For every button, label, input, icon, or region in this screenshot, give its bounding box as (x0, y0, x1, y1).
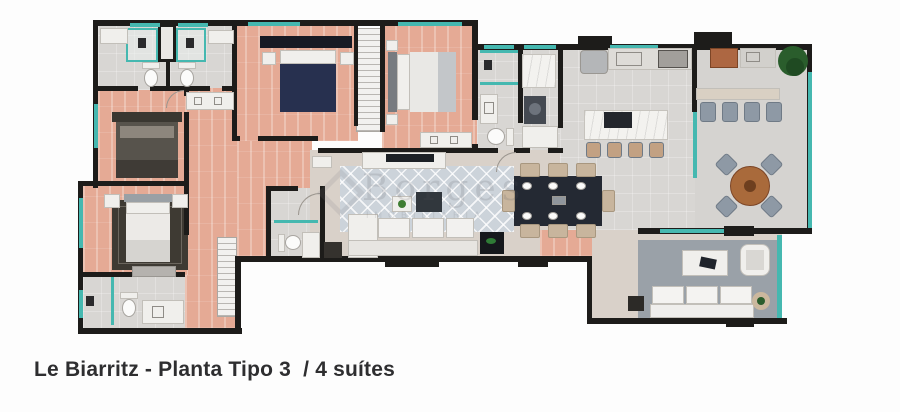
family-plant (757, 297, 765, 305)
wall-family-left (587, 256, 592, 322)
glass-family-window (777, 235, 782, 318)
dining-chair-left (502, 190, 515, 212)
wall-suite1-right-b (184, 112, 189, 185)
island-cooktop (604, 112, 632, 128)
suite2-nightstand-right (340, 52, 354, 65)
wall-laundry-right (558, 48, 563, 128)
living-shelf (312, 156, 332, 168)
door-stub-balcony (724, 226, 754, 236)
island-stool-4 (649, 142, 664, 158)
suite2-headboard-panel (260, 36, 352, 48)
floor-plan (0, 0, 900, 412)
dining-plate-6 (576, 212, 586, 220)
dining-plate-2 (548, 182, 558, 190)
toilet-bowl-b (180, 69, 194, 87)
family-side-table (628, 296, 644, 311)
kitchen-sink (616, 52, 642, 66)
shower-line-bath3 (274, 220, 318, 223)
wall-bath3-top (266, 186, 298, 191)
dining-plate-5 (548, 212, 558, 220)
master-toilet-tank (506, 128, 514, 146)
island-stool-3 (628, 142, 643, 158)
wall-suite2-bottom-b (258, 136, 318, 141)
closet-shelves-corridor (217, 237, 237, 317)
wall-column-balcony (694, 32, 732, 44)
coffee-table-dark (416, 192, 442, 212)
vanity-bath-a (100, 28, 128, 44)
window-shower-b (178, 23, 208, 27)
suite2-nightstand-left (262, 52, 276, 65)
fridge (580, 50, 608, 74)
bath4-sink (152, 306, 164, 318)
shower-head-b (186, 38, 194, 48)
window-laundry (524, 45, 556, 49)
window-bath4-left (79, 290, 83, 318)
balcony-sink (746, 52, 760, 62)
glass-balcony-door (660, 229, 724, 233)
master-blanket (438, 52, 456, 112)
master-makeup-counter (420, 132, 472, 148)
dining-chair-3 (576, 163, 596, 177)
master-headboard (388, 52, 397, 112)
sofa-cushion-2 (412, 218, 444, 238)
suite1-pillows (120, 126, 174, 138)
master-toilet-bowl (487, 128, 505, 145)
wall-column-kitchen (578, 36, 612, 46)
dining-chair-4 (520, 224, 540, 238)
shower-head-a (138, 38, 146, 48)
wall-suite4-right (184, 185, 189, 235)
plan-caption: Le Biarritz - Planta Tipo 3 / 4 suítes (34, 358, 395, 382)
master-pillows (397, 54, 410, 110)
shower-head-master (484, 60, 492, 70)
dining-chair-1 (520, 163, 540, 177)
glass-kitchen-balcony-door (693, 112, 697, 178)
master-makeup-sink-1 (430, 136, 438, 144)
duct-between-showers (158, 24, 176, 62)
washing-machine-door (529, 103, 541, 115)
suite4-blanket (126, 240, 170, 262)
shared-vanity-sink-2 (214, 97, 222, 105)
door-stub-living-a (385, 260, 439, 267)
barbecue-grill (710, 48, 738, 68)
master-nightstand-bottom (386, 114, 398, 125)
wall-leftblock-right (235, 258, 241, 334)
wall-kitchen-balcony (692, 46, 697, 112)
dining-chair-right (602, 190, 615, 212)
coffee-table-plant (398, 200, 406, 208)
suite4-nightstand-right (172, 194, 188, 208)
laundry-counter (522, 126, 558, 148)
window-suite2 (248, 22, 300, 26)
bar-stool-3 (744, 102, 760, 122)
dining-plate-4 (522, 212, 532, 220)
sofa-cushion-3 (446, 218, 474, 238)
toilet-bowl-a (144, 69, 158, 87)
toilet-tank-a (142, 62, 160, 69)
sofa-back (348, 240, 478, 256)
tv (386, 154, 434, 162)
suite1-blanket (116, 160, 178, 178)
wall-master-right-a (472, 26, 478, 120)
sofa-cushion-1 (378, 218, 410, 238)
dining-chair-2 (548, 163, 568, 177)
vanity-bath-b (208, 30, 234, 44)
suite2-pillows (280, 50, 336, 64)
suite4-pillows (126, 202, 170, 214)
shared-vanity-sink-1 (194, 97, 202, 105)
wall-bath4-top-b (176, 272, 185, 277)
lamp-side-table (324, 242, 342, 258)
dining-centerpiece (552, 196, 566, 205)
suite4-dresser (132, 266, 176, 277)
shower-line-master-b (480, 82, 518, 85)
suite4-nightstand-left (104, 194, 120, 208)
suite2-bed (280, 64, 336, 112)
island-stool-1 (586, 142, 601, 158)
island-stool-2 (607, 142, 622, 158)
window-shower-a (130, 23, 160, 27)
bath4-toilet-bowl (122, 299, 136, 317)
toilet-tank-b (178, 62, 196, 69)
window-master-bath (484, 45, 514, 49)
dining-plate-1 (522, 182, 532, 190)
cooktop-wall (658, 50, 688, 68)
bar-stool-2 (722, 102, 738, 122)
master-makeup-sink-2 (450, 136, 458, 144)
shower-line-master-a (480, 50, 518, 53)
bath4-toilet-tank (120, 292, 138, 299)
floor-plan-image: Borges IMOBILIÁRIA Le Biarritz - Planta … (0, 0, 900, 412)
balcony-bar-counter (696, 88, 780, 100)
wall-bottom-left (78, 328, 242, 334)
wall-closet2-left (354, 26, 358, 126)
family-sofa-cushion-3 (720, 286, 752, 304)
family-sofa-cushion-2 (686, 286, 718, 304)
wall-left-step (78, 181, 188, 186)
family-sofa-cushion-1 (652, 286, 684, 304)
wall-bath3-left (266, 186, 271, 258)
closet-shelves-suite2 (356, 28, 382, 132)
plant-large-inner (786, 58, 804, 76)
laundry-cabinet (522, 54, 556, 88)
window-suite1-left (94, 104, 98, 148)
master-nightstand-top (386, 40, 398, 51)
door-stub-living-b (518, 260, 548, 267)
wall-master-left (380, 26, 385, 132)
family-armchair-seat (746, 250, 764, 270)
glass-balcony-right (808, 72, 812, 228)
dining-chair-6 (576, 224, 596, 238)
wall-bathrooms-bottom-a (98, 86, 138, 91)
wall-bath-laundry-bottom-c (548, 148, 563, 153)
window-master (398, 22, 462, 26)
dining-plate-3 (576, 182, 586, 190)
wall-bath-laundry-bottom-b (514, 148, 530, 153)
bath3-toilet-bowl (285, 235, 301, 250)
bar-stool-1 (700, 102, 716, 122)
dining-chair-5 (548, 224, 568, 238)
window-suite4-left (79, 198, 83, 248)
round-table-center (744, 180, 756, 192)
master-bath-sink (484, 102, 494, 114)
wall-suite2-bottom-a (232, 136, 240, 141)
family-sofa-back (650, 304, 754, 318)
wall-bath-laundry-bottom-a (477, 148, 498, 153)
bar-stool-4 (766, 102, 782, 122)
shower-head-bath4 (86, 296, 94, 306)
fireplace-screen (486, 238, 496, 244)
wall-family-bottom (587, 318, 787, 324)
door-stub-family (726, 318, 754, 327)
shower-line-bath4 (111, 277, 114, 325)
bath3-vanity (302, 232, 320, 258)
suite1-headboard (112, 112, 182, 122)
bath3-toilet-tank (278, 234, 285, 252)
suite4-headboard (124, 194, 172, 202)
